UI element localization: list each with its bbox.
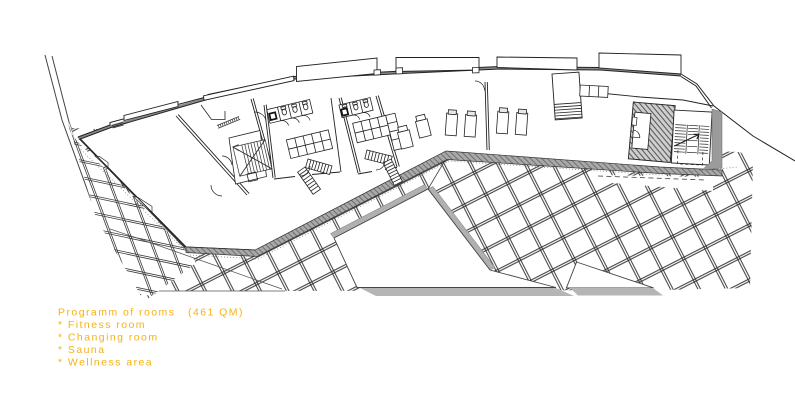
svg-text:* Wellness area: * Wellness area	[58, 357, 153, 369]
svg-text:(461 QM): (461 QM)	[188, 307, 244, 319]
svg-text:Programm of rooms: Programm of rooms	[58, 307, 175, 319]
svg-text:* Changing room: * Changing room	[58, 332, 159, 344]
svg-text:* Fitness room: * Fitness room	[58, 319, 146, 331]
svg-text:* Sauna: * Sauna	[58, 344, 106, 356]
